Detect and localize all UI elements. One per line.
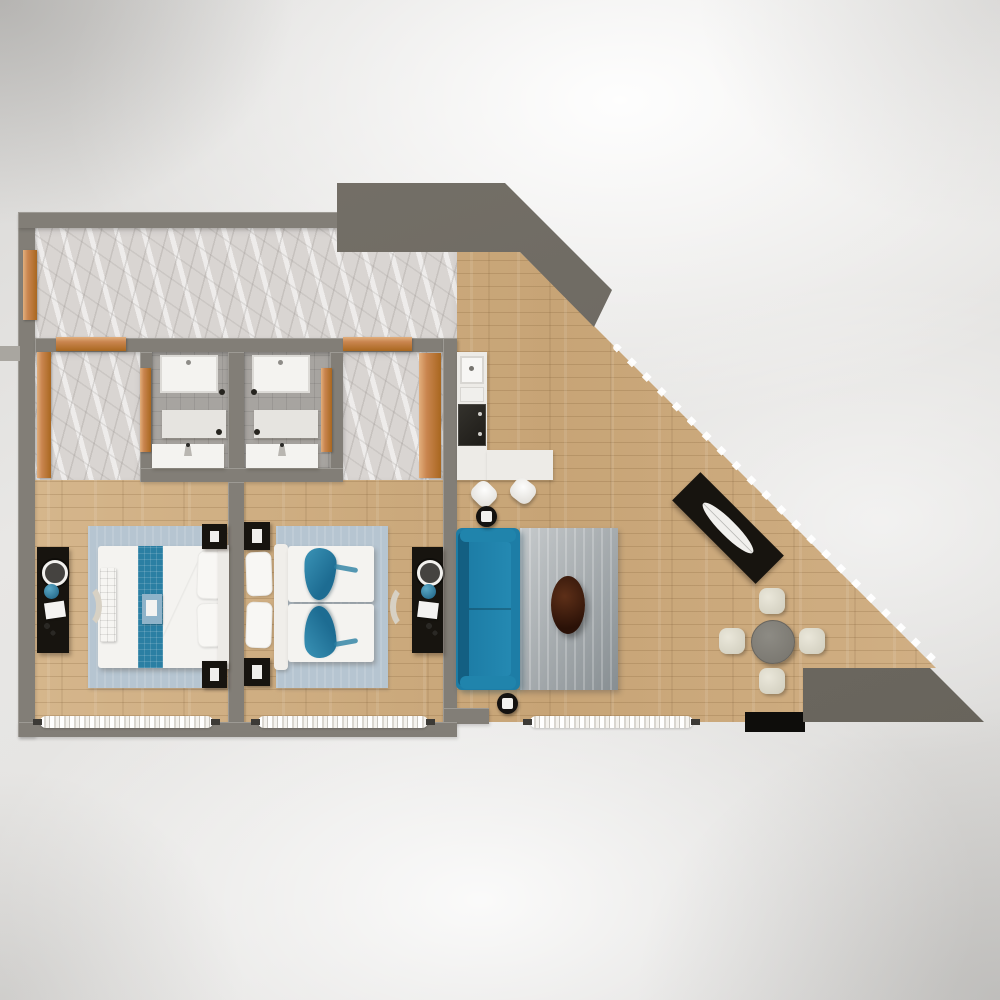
floor-plan-stage [0, 0, 1000, 1000]
dining-table [751, 620, 795, 664]
sofa-armrest [460, 529, 516, 542]
sofa-cushions [469, 542, 511, 676]
window-curtain [530, 716, 693, 728]
dining-chair [799, 628, 825, 654]
sofa-back [458, 532, 469, 686]
coffee-table [551, 576, 585, 634]
dining-chair [759, 668, 785, 694]
glass-wall-curtain-dashes [612, 343, 940, 667]
sofa-armrest [460, 676, 516, 689]
side-stool [497, 693, 518, 714]
side-stool [476, 506, 497, 527]
dining-chair [759, 588, 785, 614]
doormat [745, 712, 805, 732]
living-dining [0, 0, 1000, 1000]
dining-chair [719, 628, 745, 654]
